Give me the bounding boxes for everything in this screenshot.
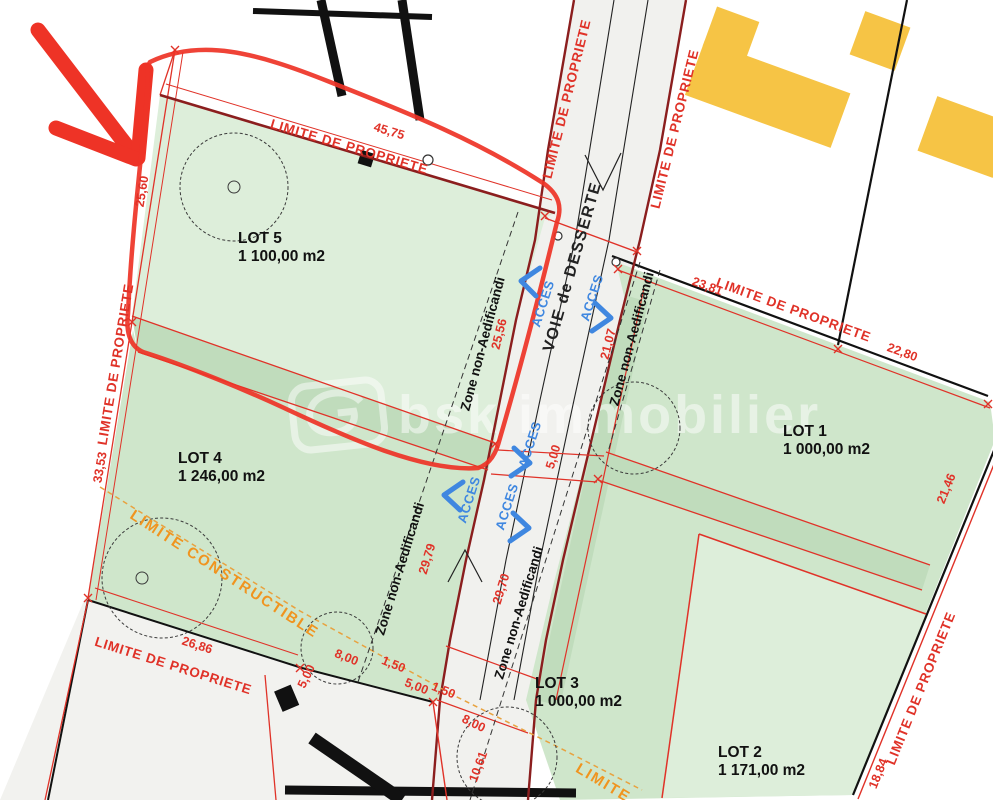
neighbor-buildings	[685, 7, 993, 178]
lot3-area: 1 000,00 m2	[535, 693, 622, 710]
building-large	[685, 7, 863, 148]
lot4-name: LOT 4	[178, 450, 222, 467]
lot2-area: 1 171,00 m2	[718, 762, 805, 779]
site-plan: bsk immobilier	[0, 0, 993, 800]
lot3-name: LOT 3	[535, 675, 579, 692]
lot2-name: LOT 2	[718, 744, 762, 761]
lot5-area: 1 100,00 m2	[238, 248, 325, 265]
survey-circle-3	[612, 258, 620, 266]
lot1-area: 1 000,00 m2	[783, 441, 870, 458]
dim-18-84: 18,84	[866, 756, 891, 790]
dim-45-75: 45,75	[372, 120, 406, 142]
hand-drawn-arrow-annotation	[38, 30, 146, 159]
lot5-name: LOT 5	[238, 230, 282, 247]
street-bar-bottom	[285, 790, 576, 793]
lot4-area: 1 246,00 m2	[178, 468, 265, 485]
lot1-name: LOT 1	[783, 423, 827, 440]
building-small	[850, 11, 911, 71]
building-right	[917, 96, 993, 178]
